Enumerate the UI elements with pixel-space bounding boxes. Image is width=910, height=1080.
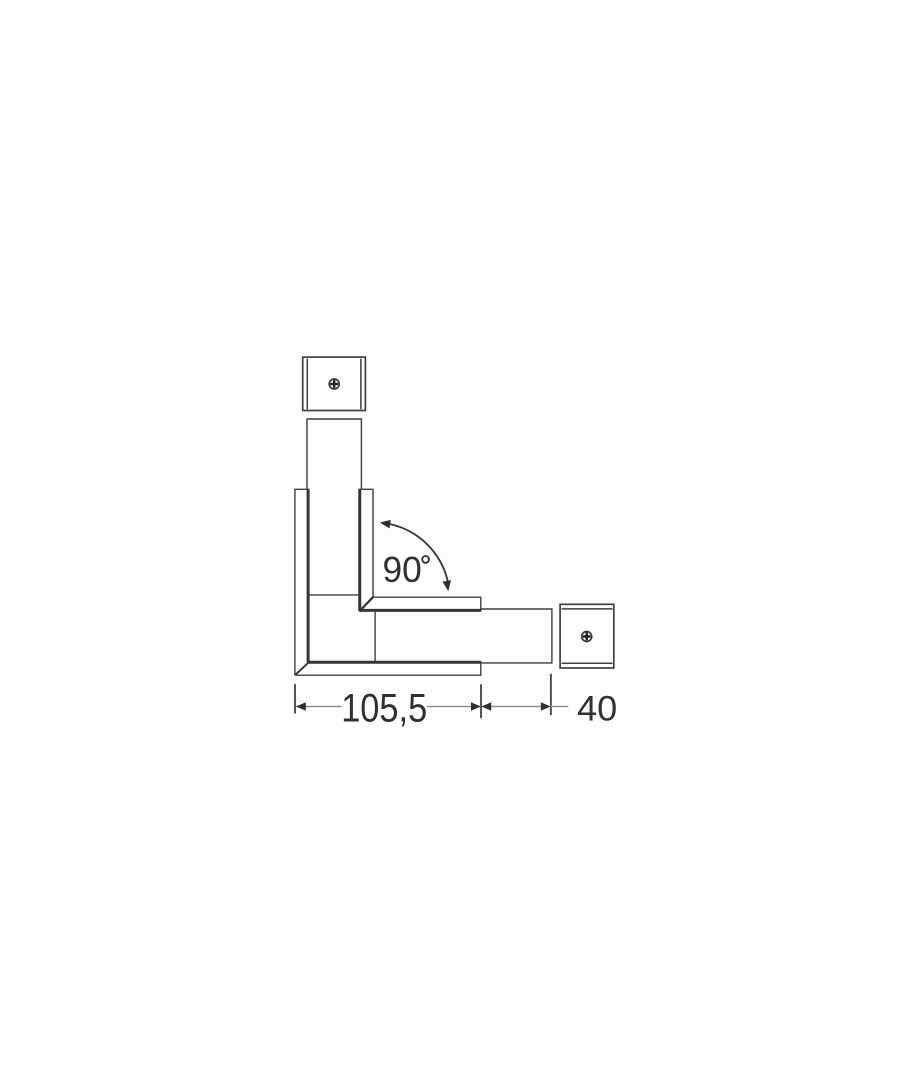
- svg-text:40: 40: [577, 689, 617, 729]
- svg-text:90: 90: [383, 550, 422, 590]
- svg-text:105,5: 105,5: [341, 687, 427, 731]
